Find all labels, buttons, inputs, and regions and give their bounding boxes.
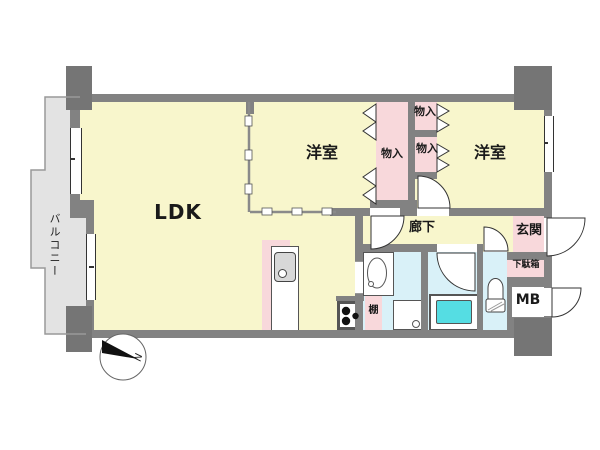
- shelf-label: 棚: [365, 305, 382, 316]
- bedroom-center-label: 洋室: [282, 144, 362, 162]
- toilet-bowl: [488, 279, 503, 300]
- meter-box-label: MB: [512, 293, 544, 308]
- folding-door-icon: [437, 158, 449, 172]
- partition-tick: [292, 208, 302, 215]
- partition-tick: [245, 184, 252, 194]
- folding-door-icon: [437, 118, 449, 132]
- floor-plan: バルコニー LDK 洋室 洋室 物入 物入 物入 廊下 玄関 下駄箱 MB 棚 …: [0, 0, 600, 450]
- partition-tick: [322, 208, 332, 215]
- balcony-label: バルコニー: [44, 190, 60, 300]
- folding-door-icon: [363, 122, 376, 140]
- door-arc-toilet: [484, 227, 508, 251]
- ldk-label: LDK: [138, 201, 218, 223]
- partition-tick: [262, 208, 272, 215]
- partition-tick: [245, 116, 252, 126]
- vanity-drain: [369, 282, 374, 287]
- shoe-cabinet-label: 下駄箱: [506, 261, 546, 271]
- folding-door-icon: [363, 186, 376, 204]
- door-arc-meter-box: [552, 288, 581, 317]
- partition-tick: [245, 150, 252, 160]
- door-arc-bathroom: [437, 253, 475, 291]
- closet-b2-label: 物入: [408, 143, 446, 155]
- closet-b1-label: 物入: [406, 106, 444, 118]
- stove-burner: [352, 313, 358, 319]
- stove-burner: [342, 307, 350, 315]
- entrance-label: 玄関: [510, 224, 548, 238]
- door-arc-front: [547, 218, 585, 256]
- closet-a-label: 物入: [374, 148, 410, 160]
- hallway-label: 廊下: [398, 221, 446, 235]
- stove-burner: [342, 317, 350, 325]
- folding-door-icon: [363, 168, 376, 186]
- folding-door-icon: [363, 104, 376, 122]
- door-arc-bedroom-right: [418, 176, 450, 208]
- bedroom-right-label: 洋室: [450, 144, 530, 162]
